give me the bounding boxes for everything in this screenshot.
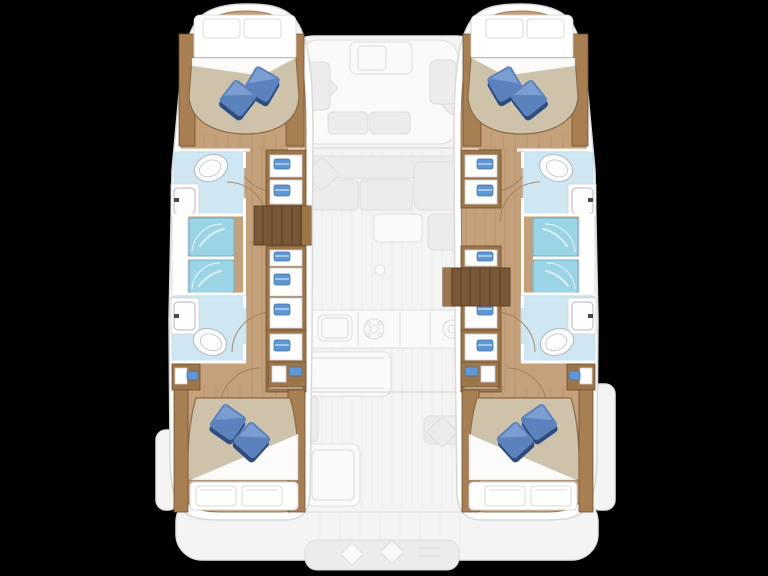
- floorplan-image: [0, 0, 768, 576]
- corner-seat: [414, 162, 460, 210]
- port-hull: [169, 4, 313, 520]
- salon-table: [374, 214, 422, 242]
- cockpit-table: [306, 444, 360, 506]
- stern-bench: [305, 540, 459, 570]
- mast-post: [375, 265, 385, 275]
- starboard-hull: [454, 4, 598, 520]
- island-counter: [299, 352, 391, 396]
- sofa-seat: [360, 180, 412, 210]
- sofa-seat: [306, 180, 358, 210]
- foredeck-cockpit: [300, 40, 468, 144]
- seat: [328, 112, 368, 134]
- starboard-companionway-steps: [443, 268, 510, 306]
- port-companionway-steps: [254, 206, 311, 245]
- seat: [370, 112, 410, 134]
- floor-plan-canvas: [0, 0, 768, 576]
- seat: [430, 60, 456, 104]
